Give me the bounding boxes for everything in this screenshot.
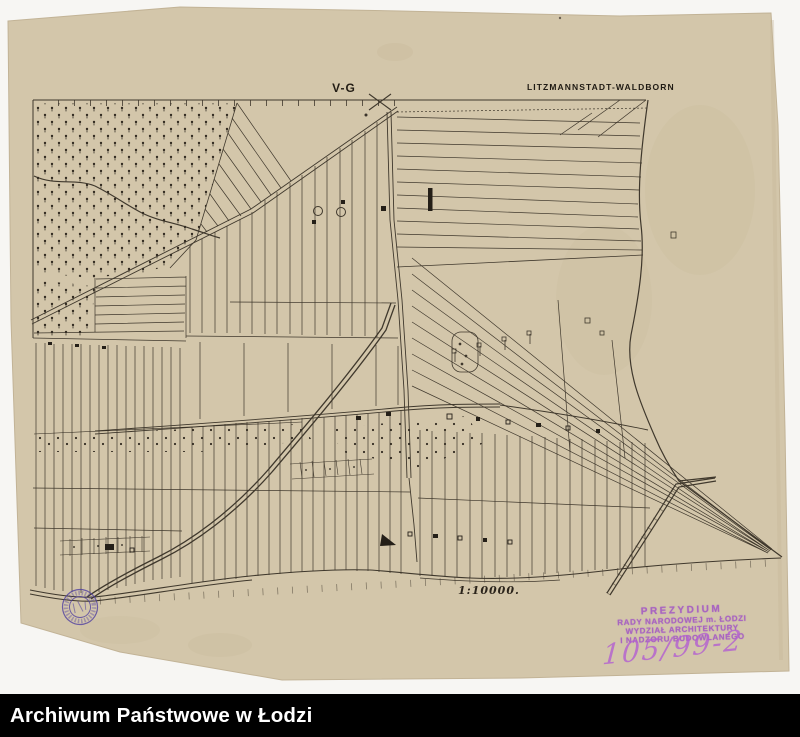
map-title-label: LITZMANNSTADT-WALDBORN (527, 82, 675, 92)
scale-label: 1:10000. (458, 584, 520, 597)
sheet-code-label: V-G (322, 81, 366, 95)
archive-footer-bar: Archiwum Państwowe w Łodzi (0, 694, 800, 737)
archive-scan-page: V-G LITZMANNSTADT-WALDBORN 1:10000. PREZ… (0, 0, 800, 737)
archive-name-label: Archiwum Państwowe w Łodzi (0, 704, 312, 728)
